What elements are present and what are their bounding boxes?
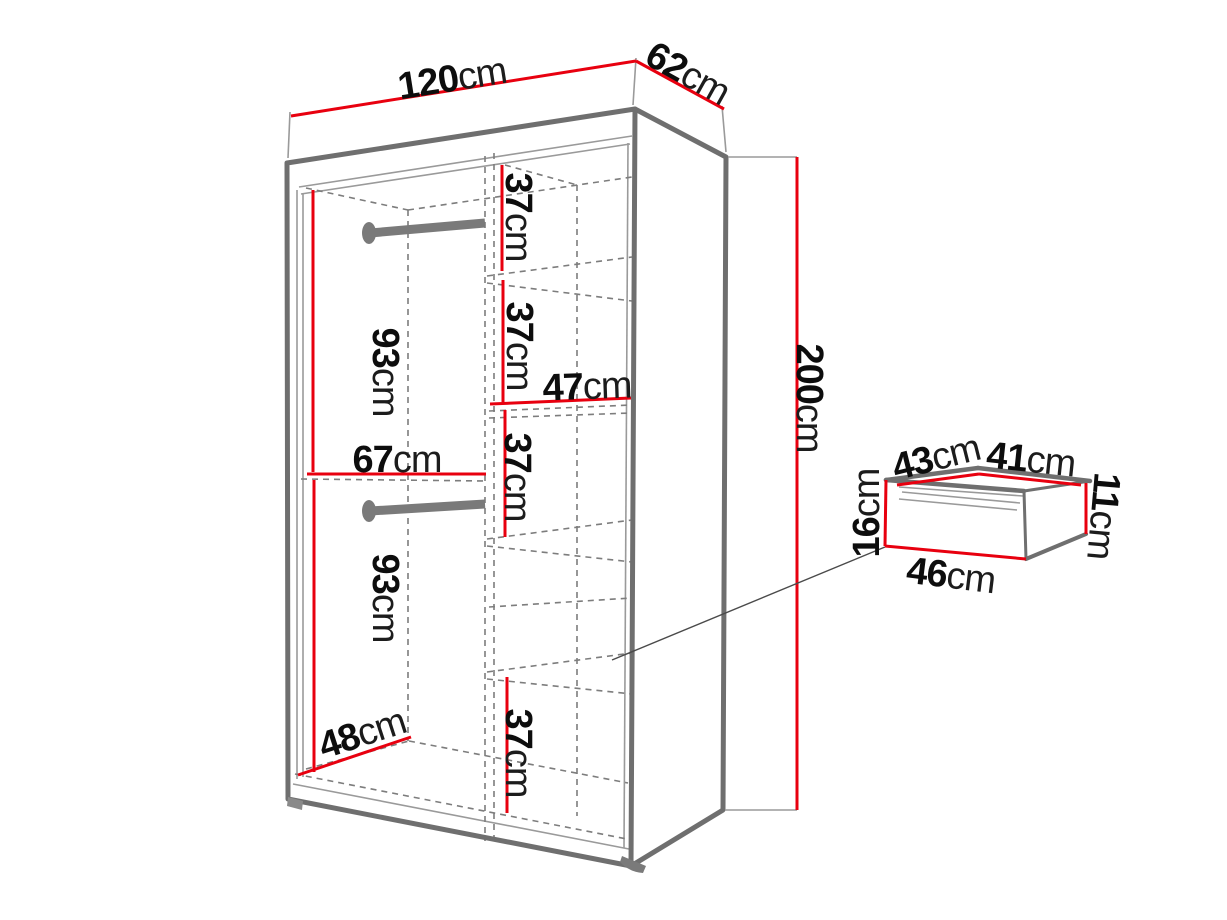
dim-label-hanging-upper: 93cm — [364, 328, 406, 417]
wardrobe-dimension-diagram: 120cm 62cm 200cm 93cm 67cm 93cm 48cm 37c… — [0, 0, 1227, 920]
dim-label-width-top: 120cm — [395, 50, 509, 109]
dim-label-shelf-3: 37cm — [496, 433, 538, 522]
dim-label-right-width: 47cm — [542, 364, 632, 409]
dim-label-drawer-front-width: 46cm — [904, 550, 997, 603]
dim-label-shelf-2: 37cm — [498, 302, 540, 391]
dim-label-depth-top: 62cm — [638, 34, 736, 114]
dim-label-hanging-lower: 93cm — [364, 554, 406, 643]
dim-label-shelf-1: 37cm — [497, 173, 539, 262]
drawer-front-right-edge — [1024, 491, 1026, 559]
dim-label-left-width: 67cm — [353, 439, 442, 481]
wardrobe-side-panel — [631, 109, 726, 866]
dim-label-drawer-side-height: 11cm — [1078, 471, 1127, 561]
dim-label-drawer-front-height: 16cm — [846, 469, 888, 558]
dim-label-shelf-4: 37cm — [497, 709, 539, 798]
dim-label-height: 200cm — [788, 343, 830, 452]
